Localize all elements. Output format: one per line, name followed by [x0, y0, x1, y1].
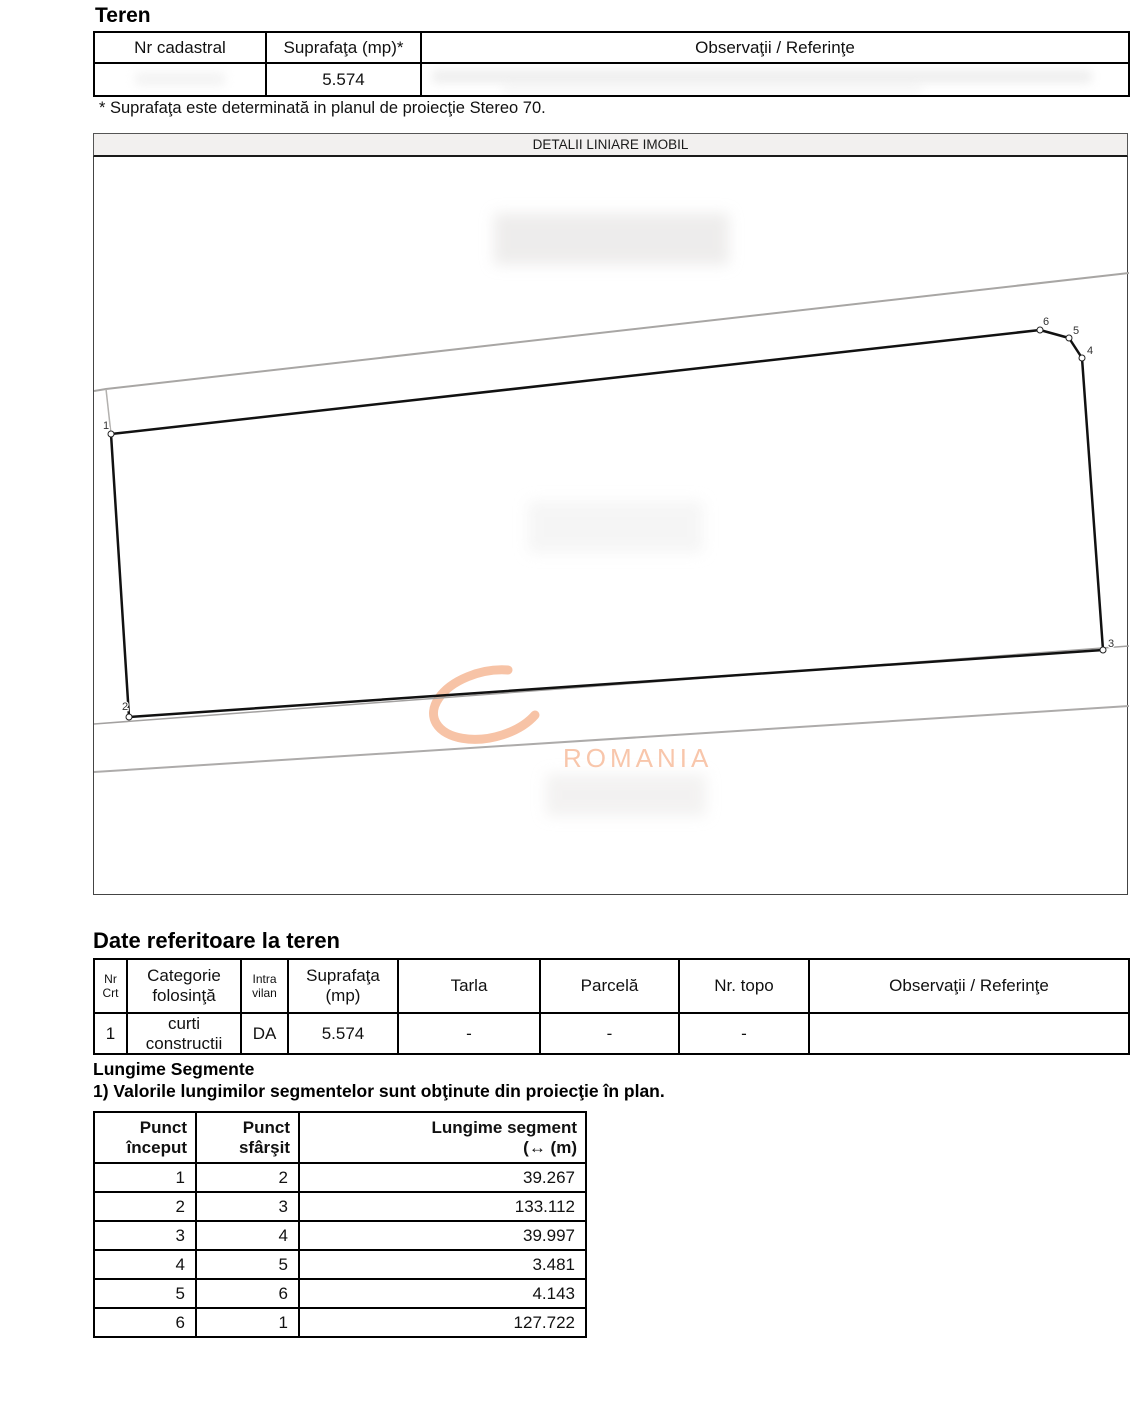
cell-nr-crt: 1 [94, 1013, 127, 1054]
segment-length: 133.112 [299, 1192, 586, 1221]
parcel-plan-drawing: ROMANIA 1 2 3 4 5 6 [94, 157, 1129, 894]
cell-suprafata: 5.574 [288, 1013, 398, 1054]
col-suprafata: Suprafaţa (mp) [288, 959, 398, 1013]
teren-table: Nr cadastral Suprafaţa (mp)* Observaţii … [93, 31, 1130, 97]
cell-observatii [809, 1013, 1129, 1054]
cell-intravilan: DA [241, 1013, 288, 1054]
vertex-point-5 [1066, 335, 1072, 341]
segment-end: 3 [196, 1192, 299, 1221]
segment-row: 5 6 4.143 [94, 1279, 586, 1308]
segment-length: 127.722 [299, 1308, 586, 1337]
col-nr-topo: Nr. topo [679, 959, 809, 1013]
segment-length: 39.267 [299, 1163, 586, 1192]
land-data-table: Nr Crt Categorie folosinţă Intra vilan S… [93, 958, 1130, 1055]
col-punct-inceput: Punct început [94, 1112, 196, 1163]
vertex-label-2: 2 [122, 701, 128, 713]
redacted-blur [528, 501, 703, 553]
teren-col-nr-cadastral: Nr cadastral [94, 32, 266, 63]
neighbor-boundary-line [94, 273, 1129, 391]
segment-length: 4.143 [299, 1279, 586, 1308]
redacted-blur [546, 774, 706, 816]
map-panel-title: DETALII LINIARE IMOBIL [93, 133, 1128, 157]
watermark-text: ROMANIA [563, 743, 712, 773]
vertex-label-3: 3 [1108, 638, 1114, 650]
teren-col-observatii: Observaţii / Referinţe [421, 32, 1129, 63]
redacted-blur [502, 86, 922, 94]
segment-end: 2 [196, 1163, 299, 1192]
redacted-blur [432, 70, 1092, 83]
cadastral-map: ROMANIA 1 2 3 4 5 6 [93, 157, 1128, 895]
teren-col-suprafata: Suprafaţa (mp)* [266, 32, 421, 63]
redacted-blur [135, 72, 225, 86]
col-tarla: Tarla [398, 959, 540, 1013]
vertex-label-4: 4 [1087, 345, 1093, 357]
segment-length: 3.481 [299, 1250, 586, 1279]
cell-tarla: - [398, 1013, 540, 1054]
watermark-crescent-icon [434, 670, 535, 740]
segment-row: 6 1 127.722 [94, 1308, 586, 1337]
vertex-label-5: 5 [1073, 325, 1079, 337]
col-intravilan: Intra vilan [241, 959, 288, 1013]
col-lungime-segment: Lungime segment (↔ (m) [299, 1112, 586, 1163]
segment-row: 1 2 39.267 [94, 1163, 586, 1192]
segment-start: 5 [94, 1279, 196, 1308]
segment-length: 39.997 [299, 1221, 586, 1250]
segment-start: 3 [94, 1221, 196, 1250]
segment-start: 2 [94, 1192, 196, 1221]
teren-cell-suprafata: 5.574 [266, 63, 421, 96]
segment-start: 6 [94, 1308, 196, 1337]
segment-end: 1 [196, 1308, 299, 1337]
segment-end: 4 [196, 1221, 299, 1250]
vertex-label-1: 1 [103, 420, 109, 432]
segments-table: Punct început Punct sfârşit Lungime segm… [93, 1111, 587, 1338]
cell-parcela: - [540, 1013, 679, 1054]
vertex-point-3 [1100, 647, 1106, 653]
cell-categorie: curti constructii [127, 1013, 241, 1054]
surface-footnote: * Suprafaţa este determinată in planul d… [99, 99, 546, 118]
col-observatii: Observaţii / Referinţe [809, 959, 1129, 1013]
cell-nr-topo: - [679, 1013, 809, 1054]
col-nr-crt: Nr Crt [94, 959, 127, 1013]
teren-cell-observatii [421, 63, 1129, 96]
linear-details-panel: DETALII LINIARE IMOBIL ROMANIA [93, 133, 1128, 895]
segment-start: 4 [94, 1250, 196, 1279]
page-title: Teren [95, 4, 151, 28]
col-parcela: Parcelă [540, 959, 679, 1013]
segment-start: 1 [94, 1163, 196, 1192]
vertex-label-6: 6 [1043, 316, 1049, 328]
teren-cell-nr-cadastral [94, 63, 266, 96]
segment-row: 2 3 133.112 [94, 1192, 586, 1221]
segments-title: Lungime Segmente [93, 1059, 254, 1080]
col-categorie: Categorie folosinţă [127, 959, 241, 1013]
segment-end: 5 [196, 1250, 299, 1279]
vertex-point-2 [126, 714, 132, 720]
segments-note: 1) Valorile lungimilor segmentelor sunt … [93, 1081, 665, 1102]
vertex-point-4 [1079, 355, 1085, 361]
segment-row: 4 5 3.481 [94, 1250, 586, 1279]
land-data-title: Date referitoare la teren [93, 928, 340, 954]
redacted-blur [494, 213, 729, 265]
col-punct-sfarsit: Punct sfârşit [196, 1112, 299, 1163]
segment-end: 6 [196, 1279, 299, 1308]
segment-row: 3 4 39.997 [94, 1221, 586, 1250]
